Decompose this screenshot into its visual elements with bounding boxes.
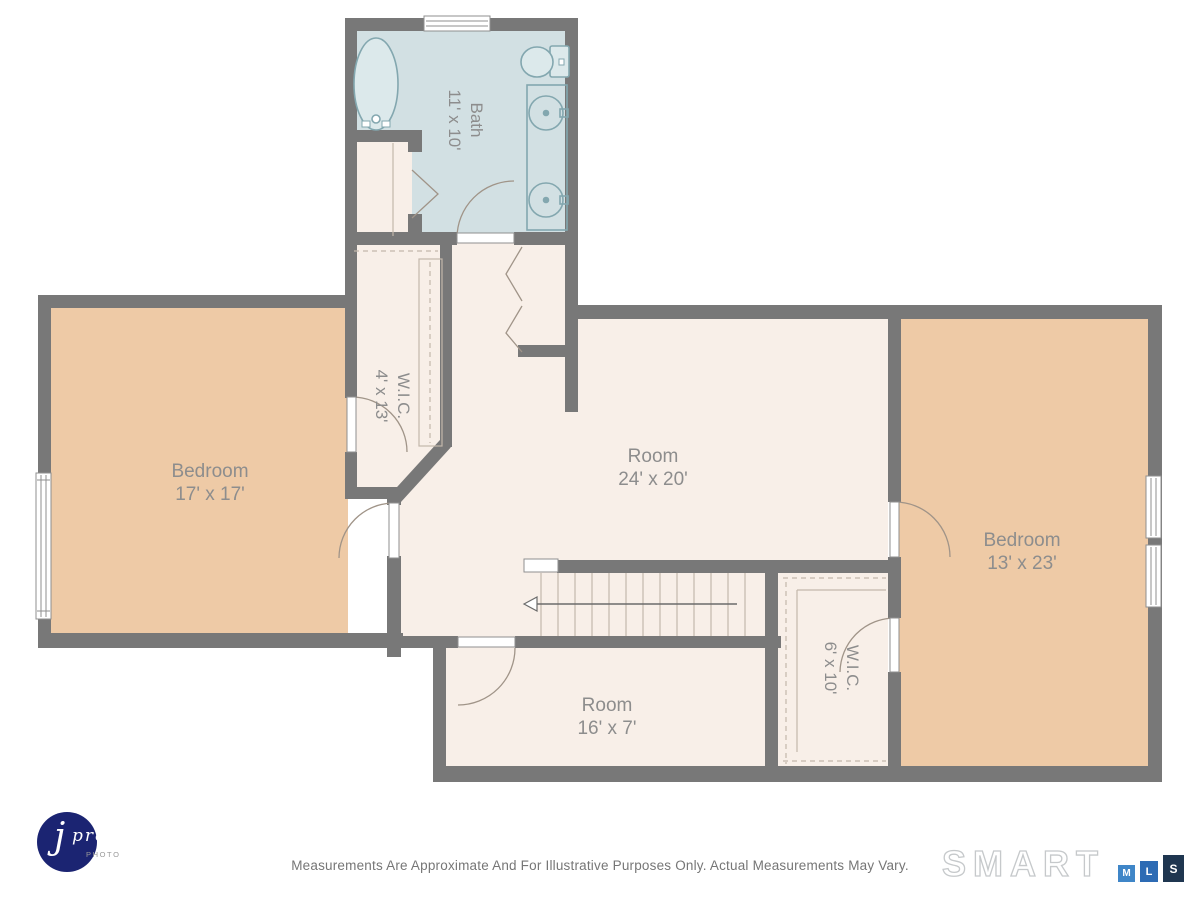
logo-name: pro: [72, 826, 107, 846]
svg-text:W.I.C.: W.I.C.: [394, 373, 413, 419]
svg-text:16' x 7': 16' x 7': [577, 718, 636, 739]
bath-window: [424, 16, 490, 31]
svg-text:Bath: Bath: [467, 103, 486, 138]
stair-landing-edge: [524, 559, 558, 572]
logo-subtext: PHOTO: [86, 850, 121, 859]
floor-plan-drawing: Bath 11' x 10' W.I.C. 4' x 13' Bedroom 1…: [0, 0, 1200, 900]
floor-plan-page: Bath 11' x 10' W.I.C. 4' x 13' Bedroom 1…: [0, 0, 1200, 900]
bedroom-left-window: [36, 473, 51, 619]
bathtub-icon: [354, 38, 398, 130]
room-fills: [48, 30, 1153, 772]
svg-text:17' x 17': 17' x 17': [175, 484, 245, 505]
smart-mls-logo: SMART M L S: [942, 846, 1184, 882]
svg-text:W.I.C.: W.I.C.: [843, 645, 862, 691]
svg-text:11' x 10': 11' x 10': [445, 90, 464, 151]
photographer-logo: j pro PHOTO: [28, 806, 138, 886]
svg-text:24' x 20': 24' x 20': [618, 469, 688, 490]
mls-l-square: L: [1140, 861, 1158, 882]
svg-text:Bedroom: Bedroom: [171, 461, 248, 482]
svg-text:Room: Room: [582, 695, 633, 716]
svg-text:Bedroom: Bedroom: [983, 530, 1060, 551]
svg-text:Room: Room: [628, 446, 679, 467]
svg-text:13' x 23': 13' x 23': [987, 553, 1057, 574]
logo-initial: j: [54, 816, 65, 857]
svg-text:6' x 10': 6' x 10': [821, 642, 840, 695]
smart-wordmark: SMART: [942, 846, 1105, 882]
bath-closet-area: [352, 140, 412, 238]
mls-s-square: S: [1163, 855, 1184, 882]
svg-text:4' x 13': 4' x 13': [372, 370, 391, 423]
toilet-icon: [521, 46, 569, 77]
mls-m-square: M: [1118, 865, 1135, 882]
